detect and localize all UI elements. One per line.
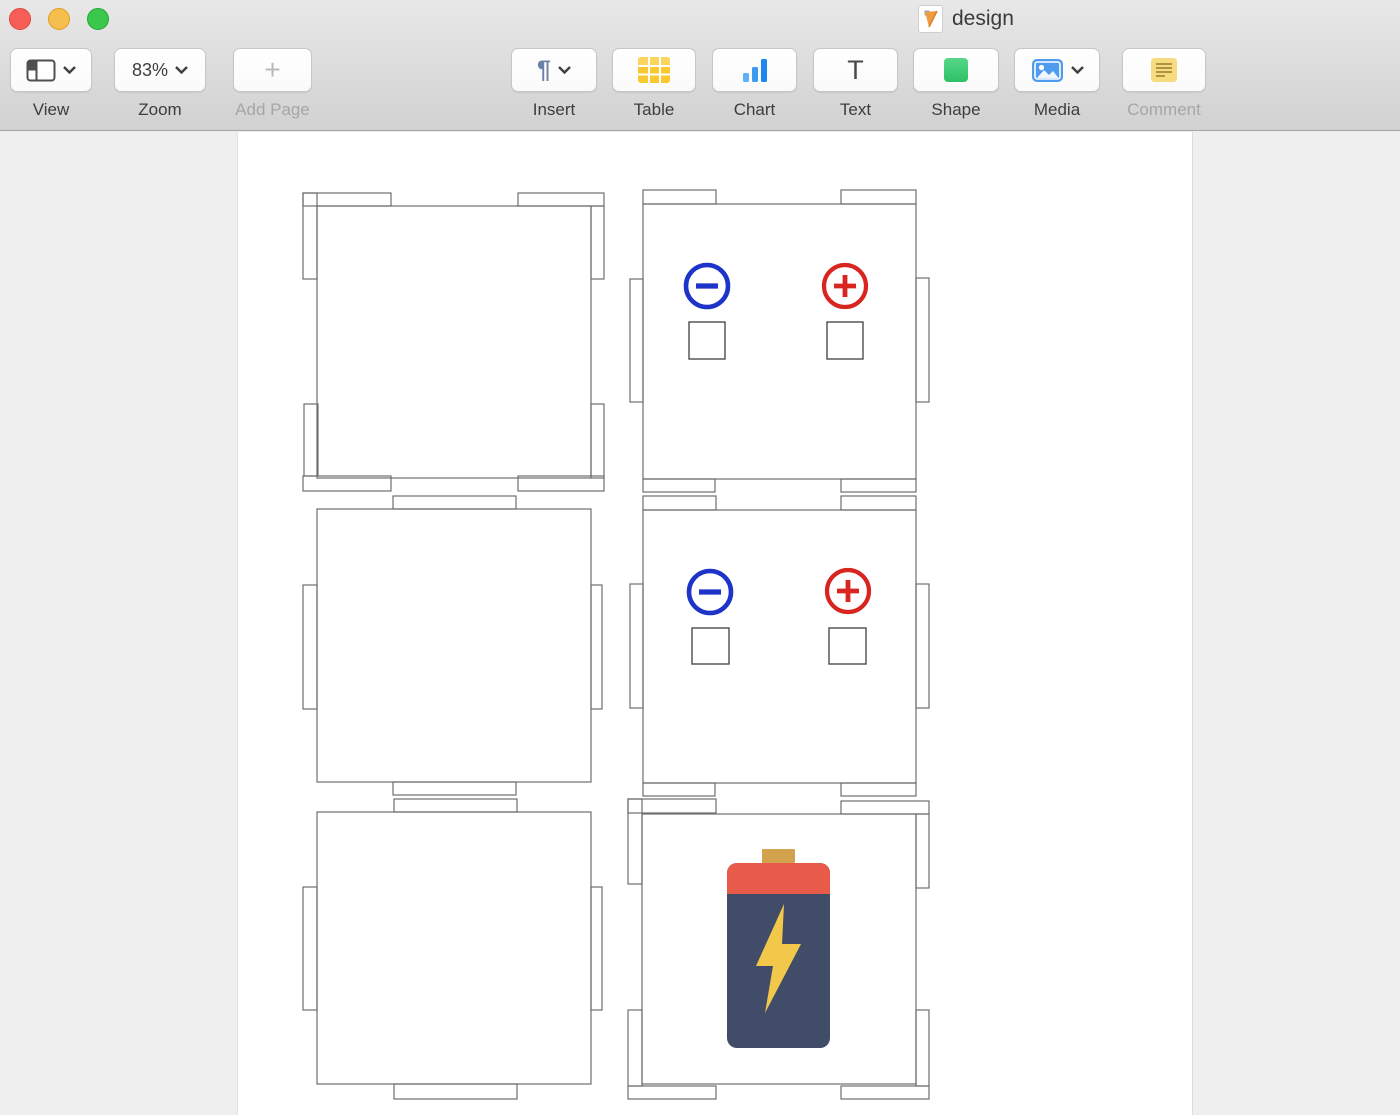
- zoom-button[interactable]: 83%: [114, 48, 206, 92]
- table-icon: [637, 56, 671, 84]
- pages-document-icon: [918, 5, 943, 33]
- window-titlebar-toolbar: design View 83% Zoom + Add Pa: [0, 0, 1400, 131]
- shape-icon: [943, 57, 969, 83]
- terminal-hole-negative[interactable]: [692, 628, 729, 664]
- chart-label: Chart: [712, 100, 797, 120]
- fullscreen-button[interactable]: [87, 8, 109, 30]
- chart-button[interactable]: [712, 48, 797, 92]
- terminal-hole-positive[interactable]: [829, 628, 866, 664]
- chevron-down-icon: [558, 66, 571, 74]
- shape-button[interactable]: [913, 48, 999, 92]
- table-label: Table: [612, 100, 696, 120]
- table-button[interactable]: [612, 48, 696, 92]
- plus-icon: +: [264, 56, 280, 84]
- minimize-button[interactable]: [48, 8, 70, 30]
- insert-label: Insert: [511, 100, 597, 120]
- chart-icon: [740, 57, 770, 83]
- battery-band: [727, 863, 830, 894]
- document-area: [0, 132, 1400, 1115]
- zoom-label: Zoom: [114, 100, 206, 120]
- box-design-drawing: [238, 132, 1194, 1115]
- chevron-down-icon: [175, 66, 188, 74]
- comment-button[interactable]: [1122, 48, 1206, 92]
- text-button[interactable]: T: [813, 48, 898, 92]
- plus-terminal-icon[interactable]: [824, 265, 866, 307]
- box-face-blank-2[interactable]: [303, 496, 602, 795]
- comment-note-icon: [1150, 57, 1178, 83]
- text-tool-icon: T: [847, 57, 864, 84]
- page[interactable]: [237, 132, 1193, 1115]
- zoom-value: 83%: [132, 60, 168, 81]
- box-face-blank-3[interactable]: [303, 799, 602, 1099]
- window-title: design: [952, 7, 1014, 31]
- box-face-blank-1[interactable]: [303, 193, 604, 491]
- add-page-label: Add Page: [233, 100, 312, 120]
- plus-terminal-icon[interactable]: [827, 570, 869, 612]
- chevron-down-icon: [63, 66, 76, 74]
- view-label: View: [10, 100, 92, 120]
- chevron-down-icon: [1071, 66, 1084, 74]
- media-button[interactable]: [1014, 48, 1100, 92]
- terminal-hole-negative[interactable]: [689, 322, 725, 359]
- minus-terminal-icon[interactable]: [686, 265, 728, 307]
- close-button[interactable]: [9, 8, 31, 30]
- media-icon: [1031, 58, 1064, 83]
- box-face-terminals-1[interactable]: [630, 190, 929, 492]
- pilcrow-icon: ¶: [537, 58, 551, 83]
- window-title-group: design: [918, 5, 1014, 33]
- comment-label: Comment: [1122, 100, 1206, 120]
- shape-label: Shape: [913, 100, 999, 120]
- text-label: Text: [813, 100, 898, 120]
- box-face-terminals-2[interactable]: [630, 496, 929, 796]
- minus-terminal-icon[interactable]: [689, 571, 731, 613]
- battery-icon[interactable]: [727, 849, 830, 1048]
- insert-button[interactable]: ¶: [511, 48, 597, 92]
- terminal-hole-positive[interactable]: [827, 322, 863, 359]
- media-label: Media: [1014, 100, 1100, 120]
- view-button[interactable]: [10, 48, 92, 92]
- view-layout-icon: [26, 59, 56, 82]
- add-page-button[interactable]: +: [233, 48, 312, 92]
- box-face-battery[interactable]: [628, 799, 929, 1099]
